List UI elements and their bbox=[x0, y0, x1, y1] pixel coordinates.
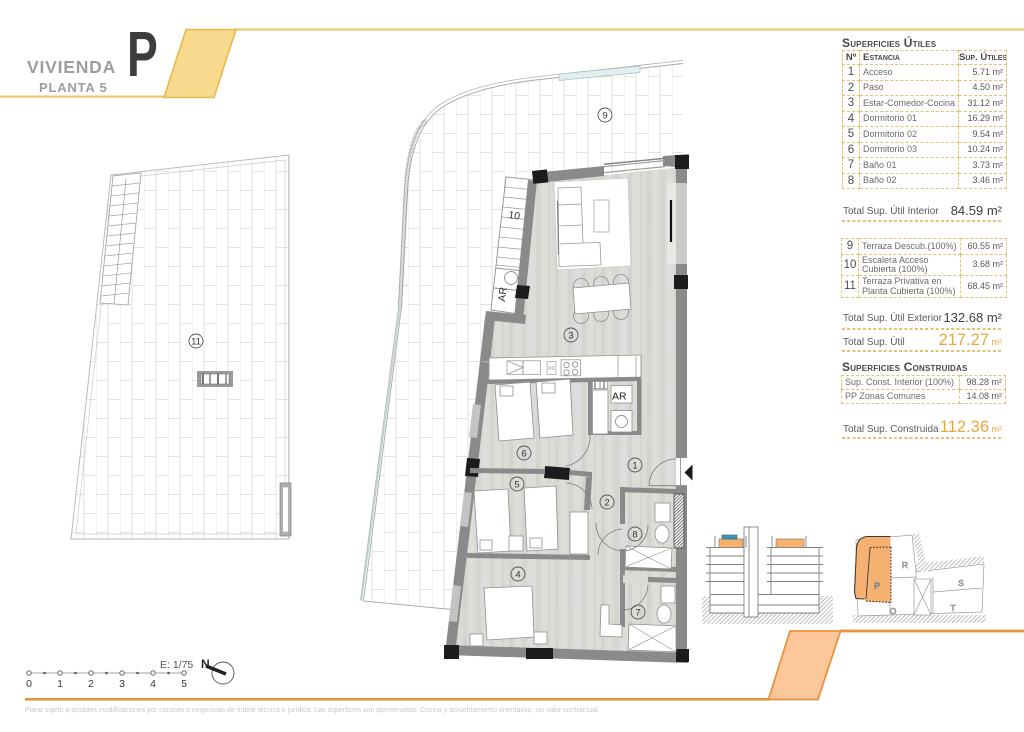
svg-text:S: S bbox=[958, 578, 964, 588]
svg-text:3: 3 bbox=[119, 678, 125, 690]
svg-text:8: 8 bbox=[632, 530, 637, 541]
svg-text:P: P bbox=[874, 581, 880, 591]
svg-text:5: 5 bbox=[514, 480, 519, 491]
svg-text:4: 4 bbox=[515, 570, 520, 581]
svg-text:0: 0 bbox=[26, 678, 32, 690]
svg-text:R: R bbox=[902, 560, 908, 570]
svg-text:T: T bbox=[950, 603, 955, 613]
svg-text:1: 1 bbox=[632, 461, 637, 472]
svg-text:O: O bbox=[890, 606, 897, 616]
svg-text:4: 4 bbox=[150, 678, 156, 690]
svg-text:7: 7 bbox=[635, 608, 640, 619]
svg-text:2: 2 bbox=[88, 678, 94, 690]
svg-text:6: 6 bbox=[521, 449, 526, 460]
svg-text:3: 3 bbox=[568, 331, 573, 342]
svg-text:E: 1/75: E: 1/75 bbox=[160, 659, 193, 671]
svg-text:5: 5 bbox=[181, 678, 187, 690]
svg-text:1: 1 bbox=[57, 678, 63, 690]
svg-text:10: 10 bbox=[508, 209, 521, 223]
svg-text:11: 11 bbox=[191, 337, 201, 348]
svg-text:AR: AR bbox=[496, 286, 510, 302]
svg-text:2: 2 bbox=[604, 498, 609, 509]
svg-text:N: N bbox=[201, 657, 210, 671]
svg-text:9: 9 bbox=[602, 111, 607, 122]
svg-text:AR: AR bbox=[612, 391, 627, 403]
